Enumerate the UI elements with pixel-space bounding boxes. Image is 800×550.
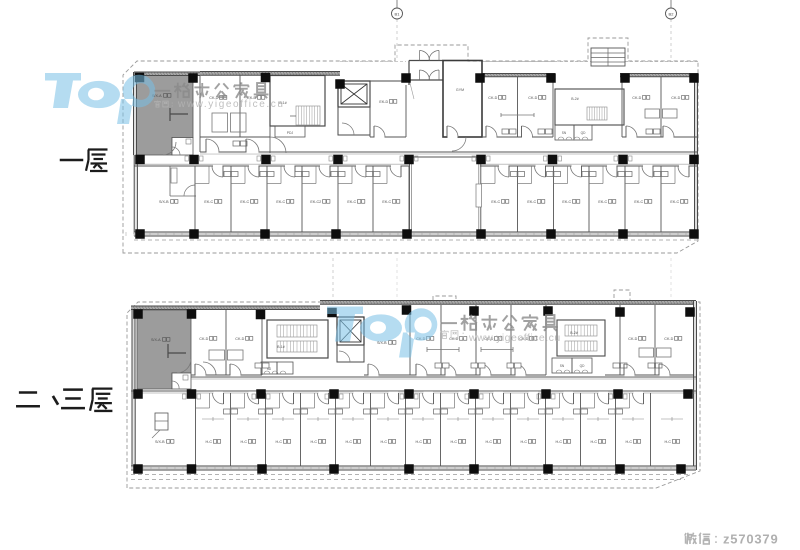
svg-text:H-C: H-C <box>346 440 353 444</box>
svg-text:B2: B2 <box>669 12 675 17</box>
svg-text:CK-D: CK-D <box>671 96 680 100</box>
svg-text:B-2#: B-2# <box>570 331 577 335</box>
svg-text:B-1#: B-1# <box>277 345 284 349</box>
svg-text:GYM: GYM <box>456 88 464 92</box>
svg-text:S/X-A: S/X-A <box>151 338 161 342</box>
svg-text:EK-C: EK-C <box>240 200 249 204</box>
svg-text:EK-C: EK-C <box>491 200 500 204</box>
svg-text:z570379: z570379 <box>723 532 778 547</box>
svg-text:H-C: H-C <box>521 440 528 444</box>
svg-text:EK-C: EK-C <box>527 200 536 204</box>
svg-text:H-C: H-C <box>486 440 493 444</box>
svg-text:PDJ: PDJ <box>287 131 294 135</box>
svg-text:H-C: H-C <box>381 440 388 444</box>
svg-text:EK-C: EK-C <box>204 200 213 204</box>
svg-text:EK-C: EK-C <box>347 200 356 204</box>
svg-text:CK-D: CK-D <box>528 96 537 100</box>
svg-text:SN: SN <box>562 131 567 135</box>
svg-text:S/X-B: S/X-B <box>159 200 169 204</box>
svg-text:CK-D: CK-D <box>632 96 641 100</box>
svg-text:EK-C: EK-C <box>276 200 285 204</box>
svg-text:EK-C: EK-C <box>670 200 679 204</box>
svg-text:CK-D: CK-D <box>488 96 497 100</box>
svg-text:H-C: H-C <box>276 440 283 444</box>
svg-text:S/X-B: S/X-B <box>377 341 387 345</box>
svg-text:H-C: H-C <box>451 440 458 444</box>
svg-text:CK-D: CK-D <box>664 337 673 341</box>
svg-text:CK-D: CK-D <box>235 337 244 341</box>
svg-text:EK-C: EK-C <box>382 200 391 204</box>
svg-text:H-C: H-C <box>241 440 248 444</box>
svg-text:EK-C: EK-C <box>634 200 643 204</box>
svg-text:SN: SN <box>560 364 565 368</box>
svg-text:QD: QD <box>580 364 585 368</box>
svg-text:B1: B1 <box>395 12 401 17</box>
svg-text:QD: QD <box>581 131 586 135</box>
svg-text:CK-D: CK-D <box>199 337 208 341</box>
svg-text:H-C: H-C <box>416 440 423 444</box>
svg-text:B-2#: B-2# <box>571 97 578 101</box>
svg-text:H-C: H-C <box>556 440 563 444</box>
svg-text:H-C: H-C <box>626 440 633 444</box>
svg-text:H-C: H-C <box>665 440 672 444</box>
svg-text:EK-C2: EK-C2 <box>310 200 321 204</box>
svg-text:H-C: H-C <box>206 440 213 444</box>
svg-text:S/X-B: S/X-B <box>155 440 165 444</box>
svg-text:H-C: H-C <box>311 440 318 444</box>
svg-text:EK-D: EK-D <box>379 100 388 104</box>
svg-text:www.yigeoffice.cu: www.yigeoffice.cu <box>177 99 285 110</box>
svg-text:CK-D: CK-D <box>628 337 637 341</box>
svg-text:www.yigeoffice.cu: www.yigeoffice.cu <box>468 332 561 344</box>
svg-text:H-C: H-C <box>591 440 598 444</box>
svg-text:EK-C: EK-C <box>562 200 571 204</box>
svg-text:EK-C: EK-C <box>598 200 607 204</box>
